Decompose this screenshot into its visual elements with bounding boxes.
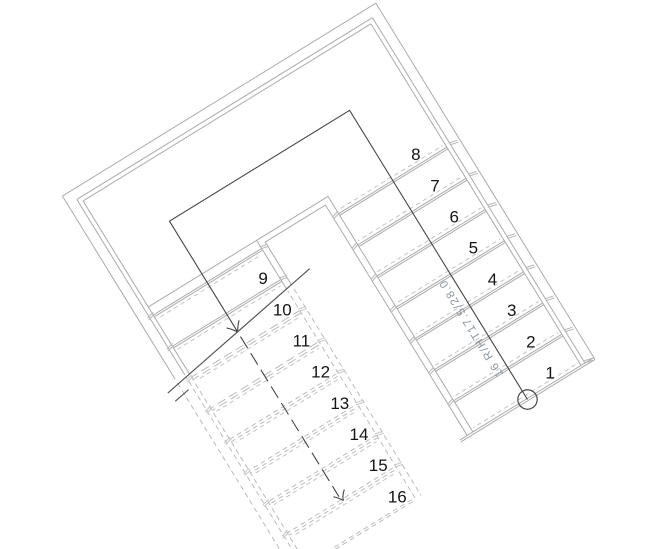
svg-text:16: 16 xyxy=(388,487,407,506)
svg-text:13: 13 xyxy=(330,394,349,413)
svg-text:3: 3 xyxy=(507,301,516,320)
svg-text:6: 6 xyxy=(449,208,458,227)
svg-text:15: 15 xyxy=(369,456,388,475)
svg-text:8: 8 xyxy=(411,145,420,164)
svg-text:7: 7 xyxy=(430,176,439,195)
svg-text:2: 2 xyxy=(526,332,535,351)
svg-text:10: 10 xyxy=(273,300,292,319)
svg-text:11: 11 xyxy=(293,332,311,351)
svg-text:9: 9 xyxy=(258,269,267,288)
svg-text:12: 12 xyxy=(311,363,330,382)
svg-text:14: 14 xyxy=(350,425,369,444)
svg-text:5: 5 xyxy=(469,239,478,258)
svg-text:1: 1 xyxy=(545,363,554,382)
svg-text:4: 4 xyxy=(488,270,497,289)
